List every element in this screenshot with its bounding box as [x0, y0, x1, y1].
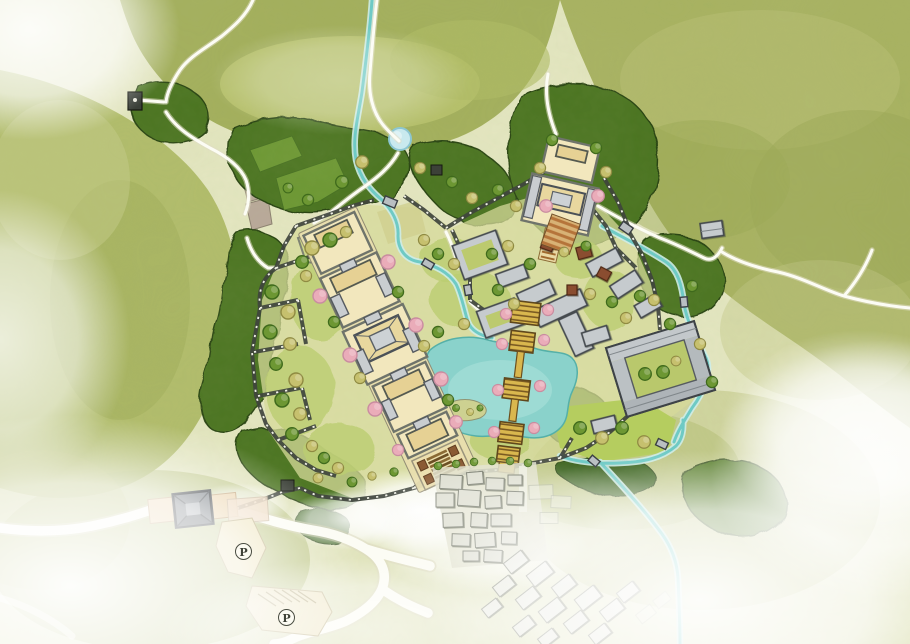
blossom-tree: [534, 380, 545, 391]
tree: [265, 285, 279, 299]
tree: [639, 368, 652, 381]
tree: [300, 270, 311, 281]
red-pavilion: [567, 285, 577, 295]
tree: [616, 422, 629, 435]
tree: [486, 248, 497, 259]
tree: [356, 156, 369, 169]
tree: [638, 436, 651, 449]
tree: [368, 472, 376, 480]
blossom-tree: [542, 304, 553, 315]
tree: [574, 422, 587, 435]
tree: [634, 290, 645, 301]
blossom-tree: [343, 348, 357, 362]
tree: [283, 183, 293, 193]
tree: [392, 286, 403, 297]
tree: [664, 318, 675, 329]
tree: [584, 288, 595, 299]
tree: [305, 241, 319, 255]
tree: [332, 462, 343, 473]
tree: [706, 376, 717, 387]
tree: [418, 234, 429, 245]
tree: [294, 408, 307, 421]
tree: [263, 325, 277, 339]
tree: [686, 280, 697, 291]
tree: [275, 393, 289, 407]
tree: [432, 248, 443, 259]
blossom-tree: [368, 402, 382, 416]
tree: [270, 358, 283, 371]
tree: [671, 356, 681, 366]
stream-hut: [431, 165, 442, 175]
tree: [546, 134, 557, 145]
parking-icon: P: [278, 609, 295, 626]
blossom-tree: [488, 426, 499, 437]
tree: [286, 428, 299, 441]
tree: [284, 338, 297, 351]
tree: [596, 432, 609, 445]
tree: [467, 409, 474, 416]
tree: [502, 240, 513, 251]
tree: [336, 176, 349, 189]
blossom-tree: [496, 338, 507, 349]
blossom-tree: [538, 334, 549, 345]
tree: [534, 162, 545, 173]
tree: [510, 200, 521, 211]
tree: [442, 394, 453, 405]
tree: [414, 162, 425, 173]
blossom-tree: [592, 190, 605, 203]
tree: [620, 312, 631, 323]
tree: [446, 176, 457, 187]
tree: [340, 226, 351, 237]
island-pavilion: [502, 378, 530, 401]
tree: [458, 318, 469, 329]
blossom-tree: [450, 416, 463, 429]
tree: [289, 373, 303, 387]
tree: [323, 233, 337, 247]
masterplan-canvas: P P: [0, 0, 910, 644]
tree: [657, 366, 670, 379]
blossom-tree: [409, 318, 423, 332]
tree: [477, 405, 483, 411]
blossom-tree: [313, 289, 327, 303]
tree: [453, 405, 460, 412]
tree: [492, 284, 503, 295]
tree: [559, 247, 569, 257]
blossom-tree: [492, 384, 503, 395]
tree: [306, 440, 317, 451]
tree: [466, 192, 477, 203]
blossom-tree: [434, 372, 448, 386]
tree: [418, 340, 429, 351]
tree: [281, 305, 295, 319]
tree: [648, 294, 659, 305]
tree: [432, 326, 443, 337]
tree: [313, 473, 323, 483]
tree: [581, 241, 591, 251]
parking-icon: P: [235, 543, 252, 560]
tree: [448, 258, 459, 269]
tree: [606, 296, 617, 307]
tree: [524, 258, 535, 269]
blossom-tree: [540, 200, 553, 213]
tree: [508, 298, 519, 309]
tree: [600, 166, 611, 177]
blossom-tree: [528, 422, 539, 433]
blossom-tree: [381, 255, 395, 269]
tree: [390, 468, 398, 476]
tree: [492, 184, 503, 195]
tree: [296, 256, 309, 269]
tree: [328, 316, 339, 327]
tree: [347, 477, 357, 487]
blossom-tree: [392, 444, 403, 455]
tree: [590, 142, 601, 153]
blossom-tree: [500, 308, 511, 319]
tree: [302, 194, 313, 205]
masterplan-drawing: [0, 0, 910, 644]
tree: [354, 372, 365, 383]
tree: [318, 452, 329, 463]
tree: [694, 338, 705, 349]
